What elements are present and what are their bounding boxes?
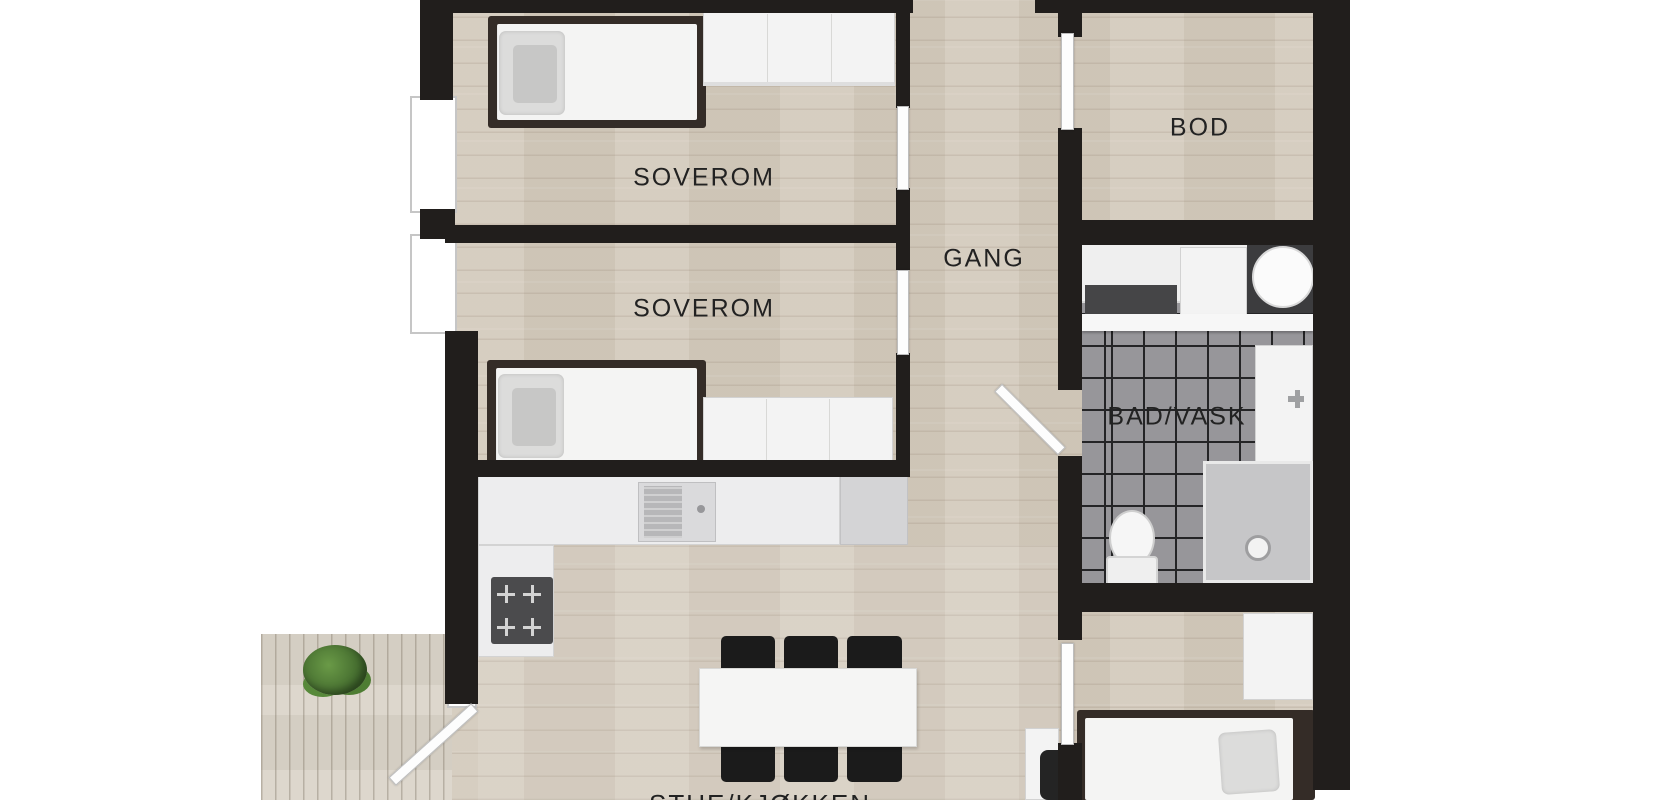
wall-kitchen-divider [445,460,910,477]
door-bedroom-3 [1061,643,1074,745]
wardrobe-1-seam2 [831,14,832,82]
wardrobe-1-seam [767,14,768,82]
dining-chair [721,741,775,782]
wardrobe-2 [703,397,893,462]
wall-hallway [896,188,910,270]
dryer [1180,247,1247,318]
wall-bath [1058,245,1082,390]
burner-icon [497,618,515,636]
room-label-soverom-2: SOVEROM [633,295,775,324]
water-heater-icon [1252,246,1314,308]
shower-stall [1203,461,1313,583]
wall-bath [1058,456,1082,640]
wall-top-right [1035,0,1350,13]
bathroom-shelf [1082,314,1313,331]
wardrobe-1 [703,12,895,86]
burner-icon [523,585,541,603]
wardrobe-3 [1243,613,1313,700]
bathroom-vanity [1255,345,1313,462]
dining-chair [784,741,838,782]
vanity-faucet-icon [1295,390,1300,408]
fridge [840,468,908,545]
room-label-gang: GANG [943,245,1025,274]
sink-faucet-icon [697,505,705,513]
wall-bod [1058,128,1082,220]
wall-top [445,0,913,13]
window [410,234,457,334]
wall-hallway [896,13,910,108]
room-label-soverom-1: SOVEROM [633,164,775,193]
wall-bath-bottom [1065,583,1313,612]
dining-chair [847,741,902,782]
burner-icon [523,618,541,636]
bed-pillow-2b [512,388,556,446]
room-label-stue-kjokken: STUE/KJØKKEN [649,789,871,800]
sink-basin [644,486,682,538]
door-bod [1061,33,1074,130]
wall-hallway [896,353,910,477]
wardrobe-2-seam [766,399,767,460]
door-bedroom-1 [897,106,909,190]
door-bedroom-2 [897,270,909,355]
wall-bod-bath-divider [1058,220,1313,245]
wall-left [445,331,478,704]
wall-bath [1058,743,1082,800]
burner-icon [497,585,515,603]
potted-plant-icon [303,645,367,695]
floor-plan: SOVEROM SOVEROM GANG BOD BAD/VASK STUE/K… [0,0,1670,800]
window [410,96,457,213]
wall-bedroom-divider [445,225,910,243]
bed-pillow-3 [1218,729,1280,795]
bed-pillow-1b [513,45,557,103]
shower-drain-icon [1245,535,1271,561]
wardrobe-2-seam2 [829,399,830,460]
dining-table [699,668,917,747]
room-label-bad-vask: BAD/VASK [1107,403,1246,432]
room-label-bod: BOD [1170,114,1230,143]
wall-left [420,0,453,100]
wall-right [1313,0,1350,790]
